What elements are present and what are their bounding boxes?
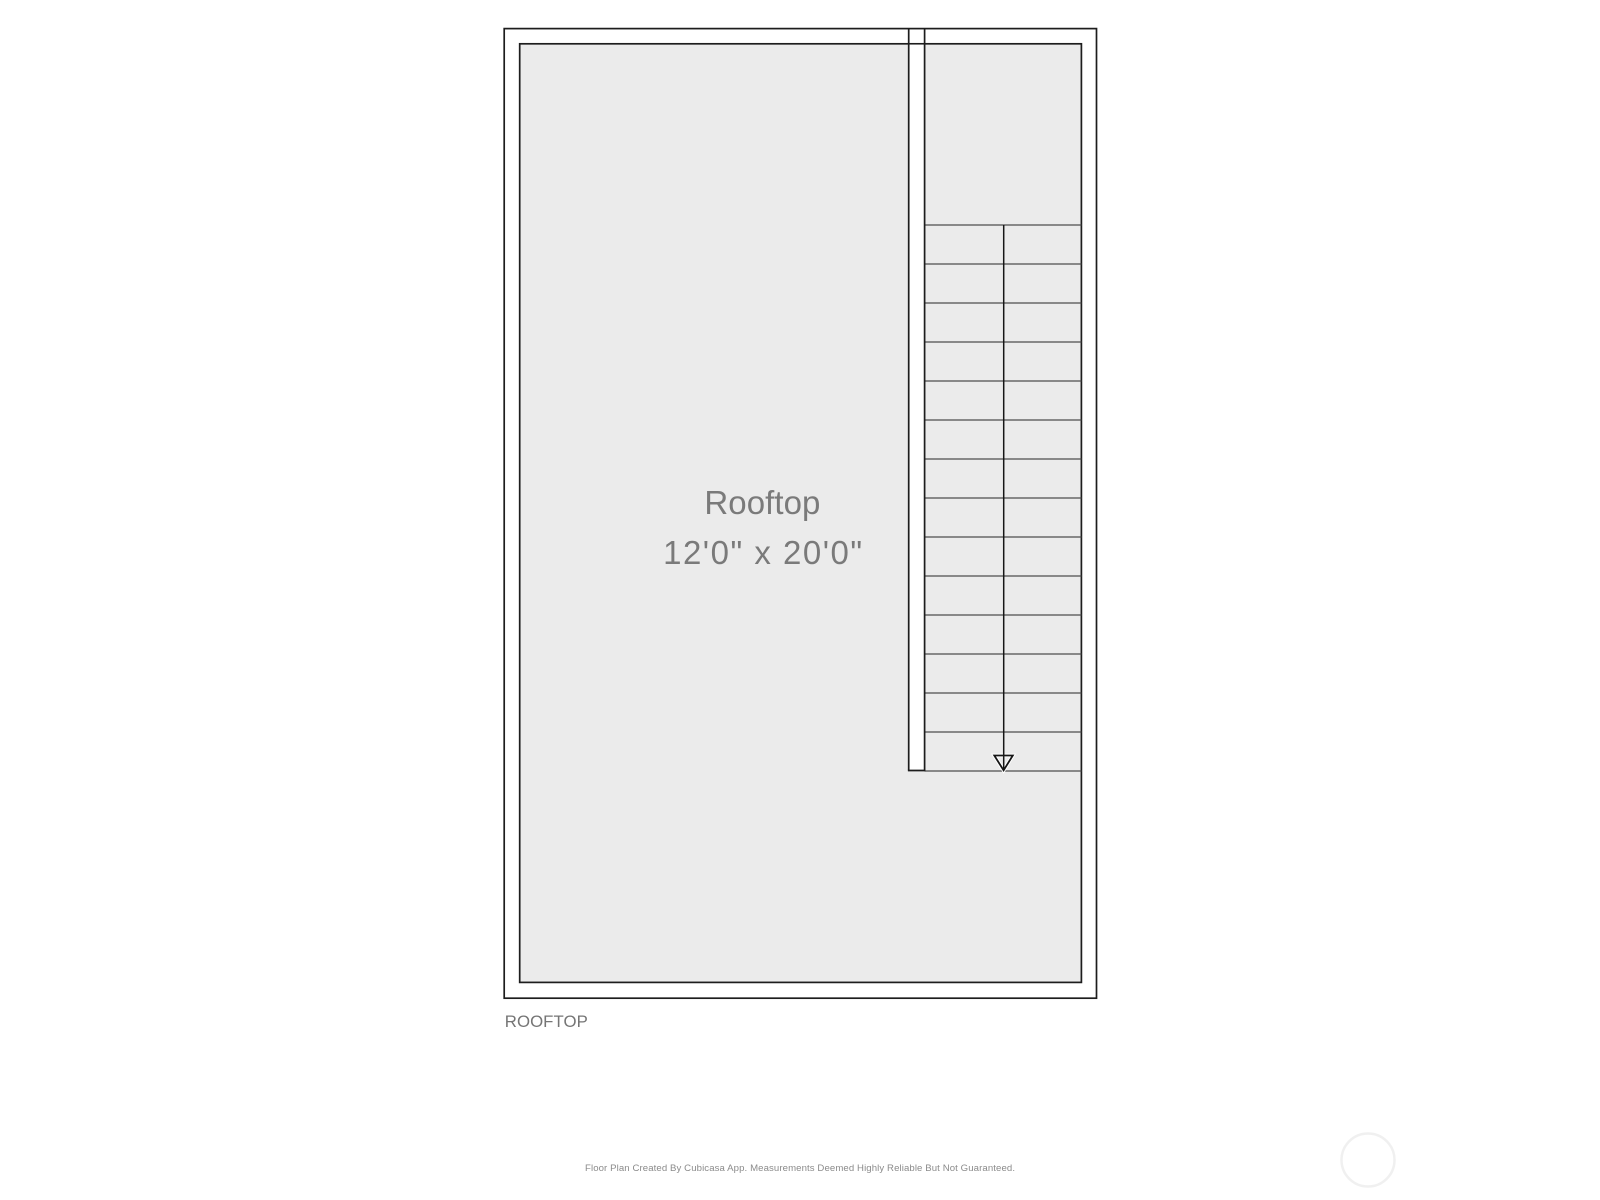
svg-text:12'0" x 20'0": 12'0" x 20'0": [663, 534, 862, 571]
svg-text:ROOFTOP: ROOFTOP: [505, 1012, 588, 1031]
svg-text:Rooftop: Rooftop: [704, 484, 820, 521]
svg-text:Floor Plan Created By Cubicasa: Floor Plan Created By Cubicasa App. Meas…: [585, 1163, 1015, 1174]
